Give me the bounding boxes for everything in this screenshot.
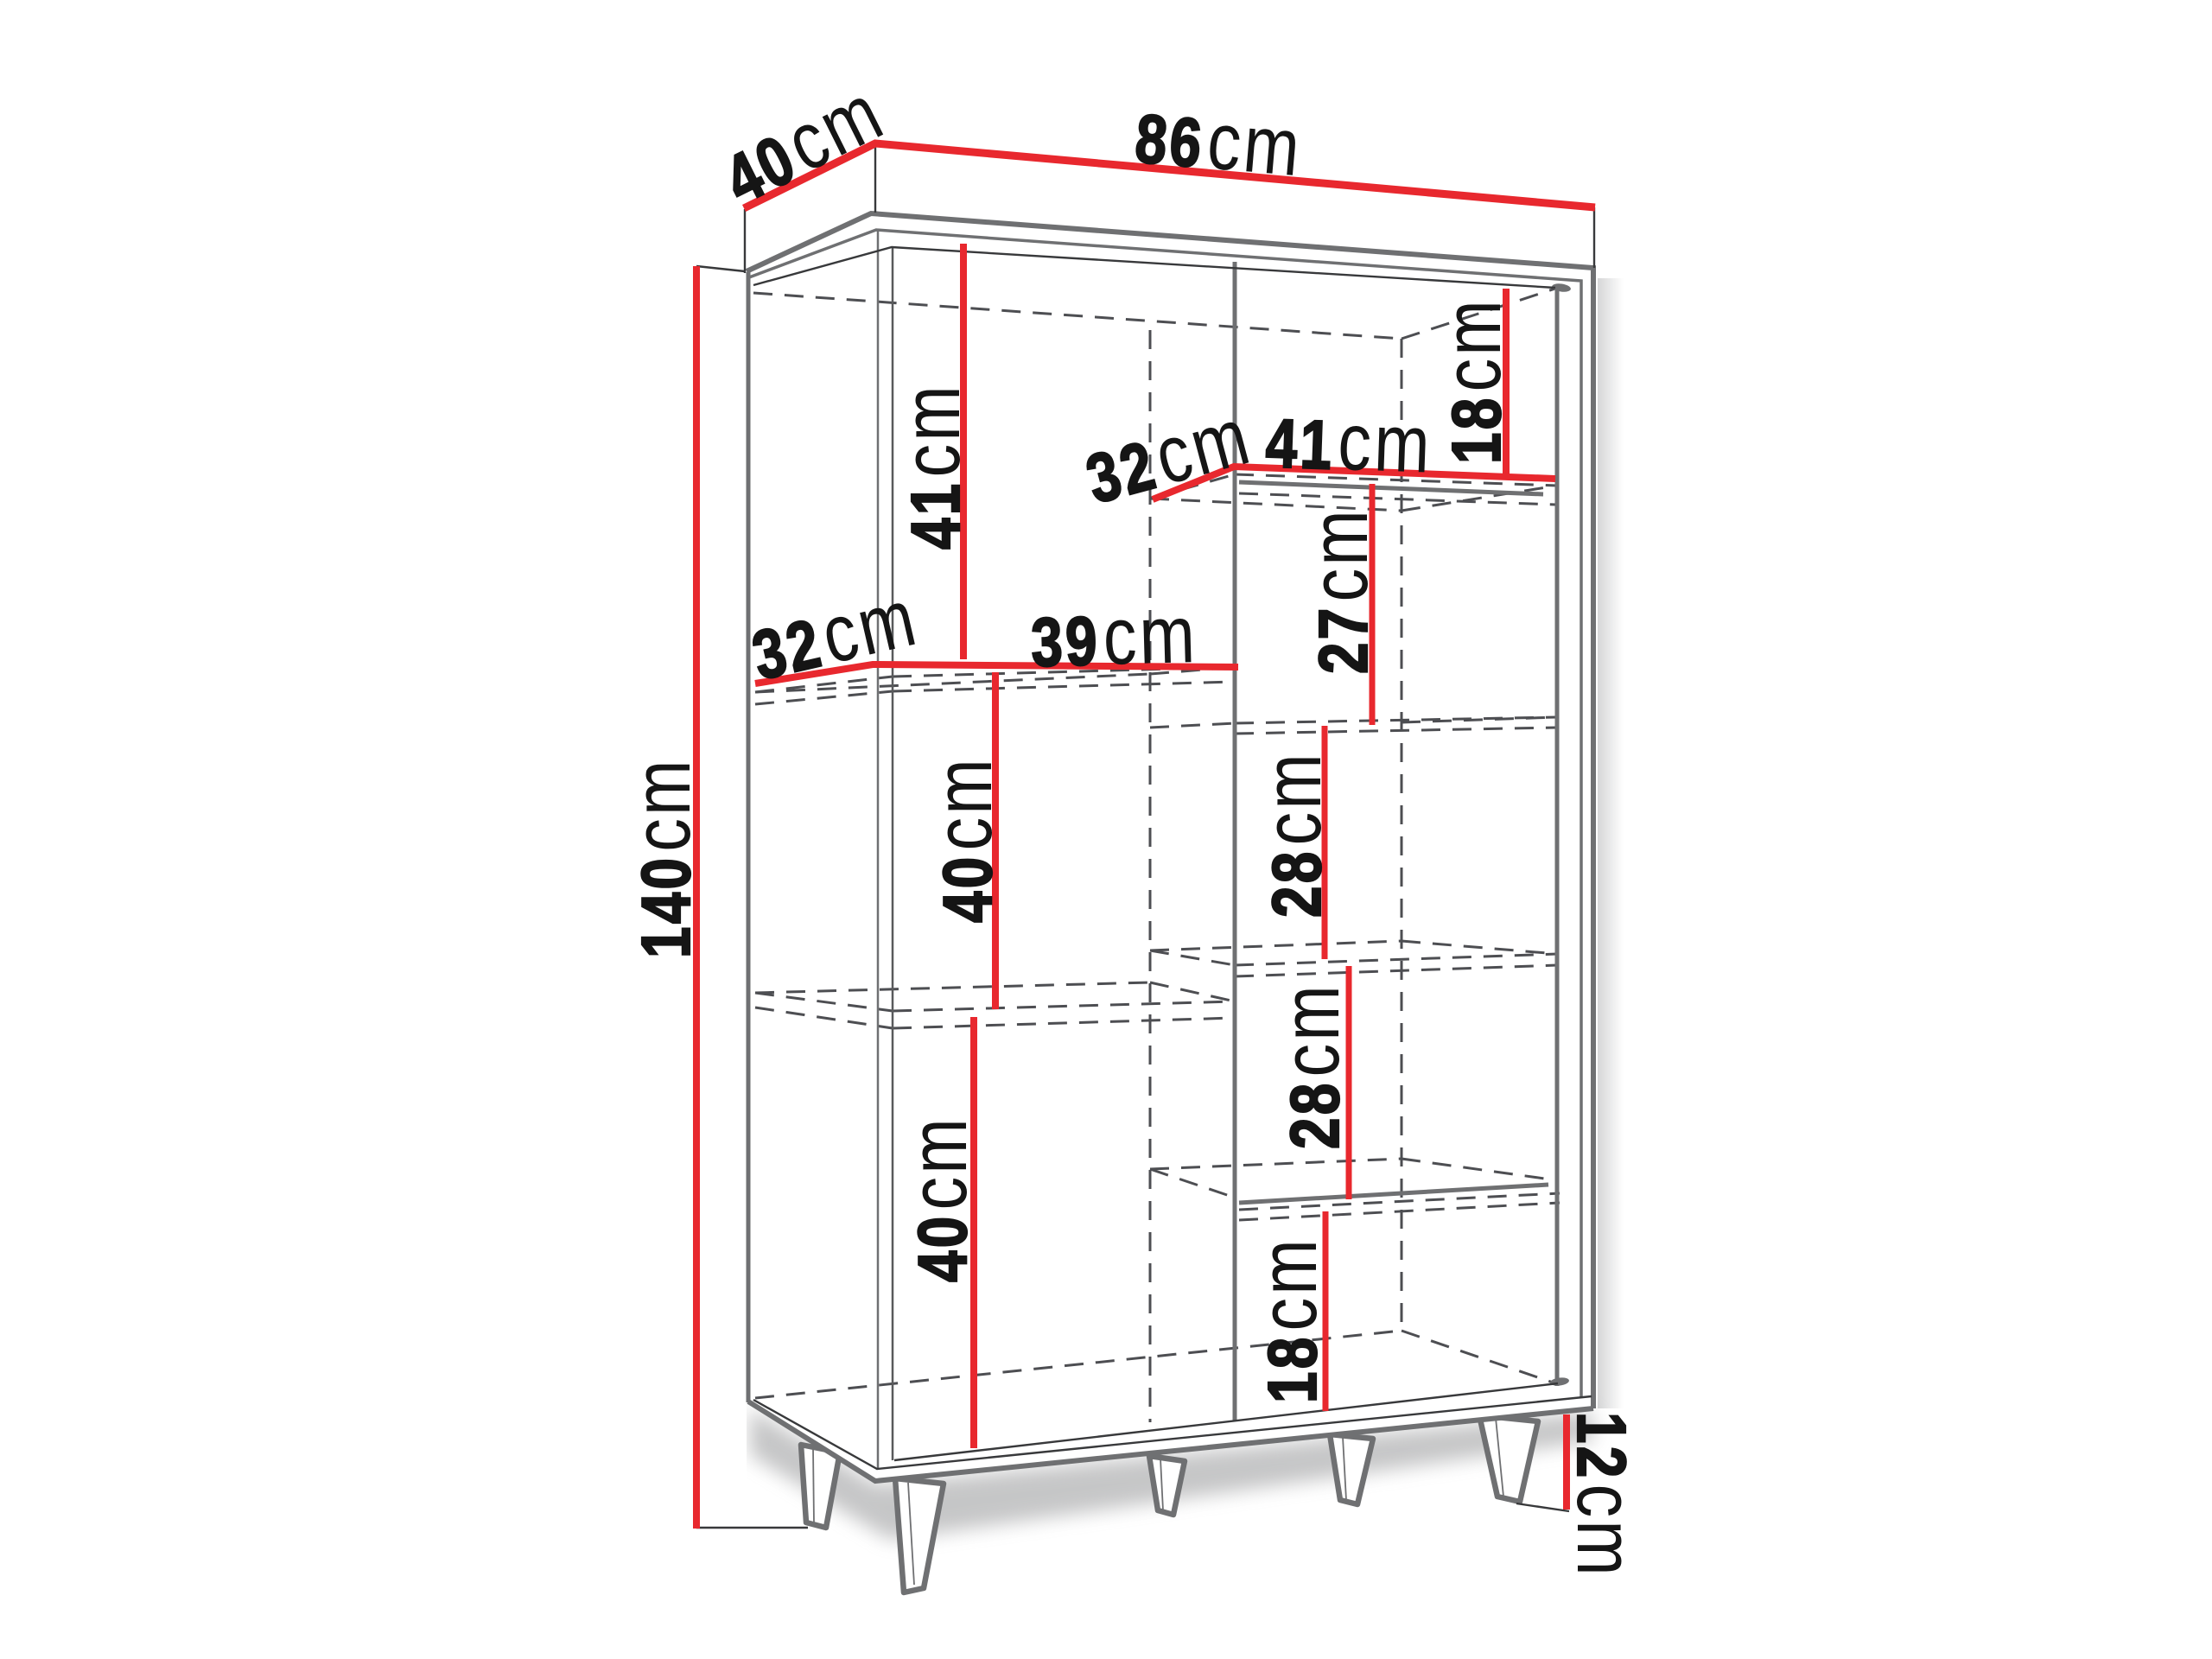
svg-text:39cm: 39cm	[1030, 589, 1199, 684]
svg-text:27cm: 27cm	[1294, 507, 1385, 674]
svg-text:40cm: 40cm	[893, 1116, 984, 1282]
svg-text:28cm: 28cm	[1248, 751, 1338, 918]
svg-text:28cm: 28cm	[1266, 982, 1357, 1149]
svg-text:86cm: 86cm	[1132, 89, 1306, 194]
svg-text:40cm: 40cm	[708, 67, 897, 222]
svg-text:18cm: 18cm	[1427, 297, 1518, 464]
svg-text:12cm: 12cm	[1560, 1412, 1650, 1579]
svg-text:41cm: 41cm	[1264, 394, 1433, 491]
svg-text:32cm: 32cm	[743, 572, 926, 698]
svg-text:40cm: 40cm	[918, 756, 1009, 923]
svg-text:18cm: 18cm	[1243, 1236, 1334, 1403]
svg-text:140cm: 140cm	[617, 757, 708, 958]
svg-text:41cm: 41cm	[887, 383, 977, 550]
